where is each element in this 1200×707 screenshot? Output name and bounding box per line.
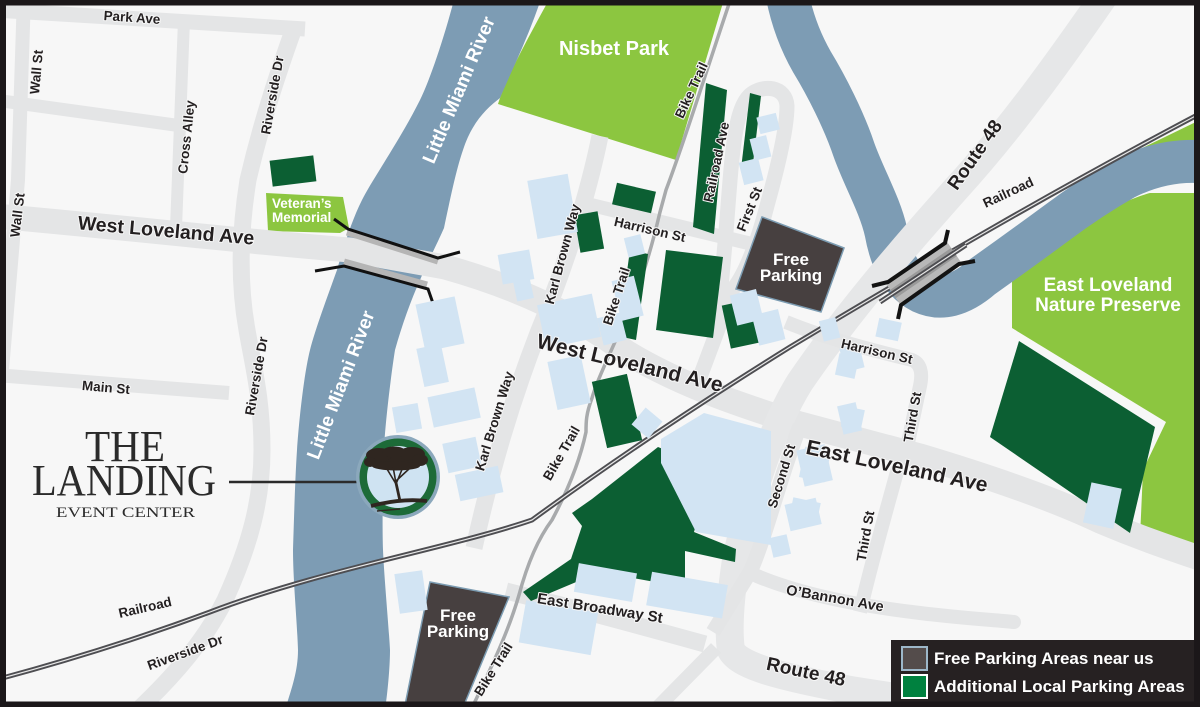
svg-text:Parking: Parking [760,266,822,285]
svg-text:EVENT CENTER: EVENT CENTER [56,505,195,521]
svg-text:Nisbet Park: Nisbet Park [559,38,670,60]
svg-text:Nature Preserve: Nature Preserve [1035,295,1181,316]
svg-text:Additional Local Parking Areas: Additional Local Parking Areas [934,677,1185,696]
svg-text:Parking: Parking [427,622,489,641]
svg-text:LANDING: LANDING [32,456,216,505]
svg-text:Memorial: Memorial [272,210,331,225]
svg-text:East Loveland: East Loveland [1044,275,1173,296]
svg-text:Free Parking Areas near us: Free Parking Areas near us [934,649,1154,668]
svg-text:Veteran’s: Veteran’s [272,196,332,211]
